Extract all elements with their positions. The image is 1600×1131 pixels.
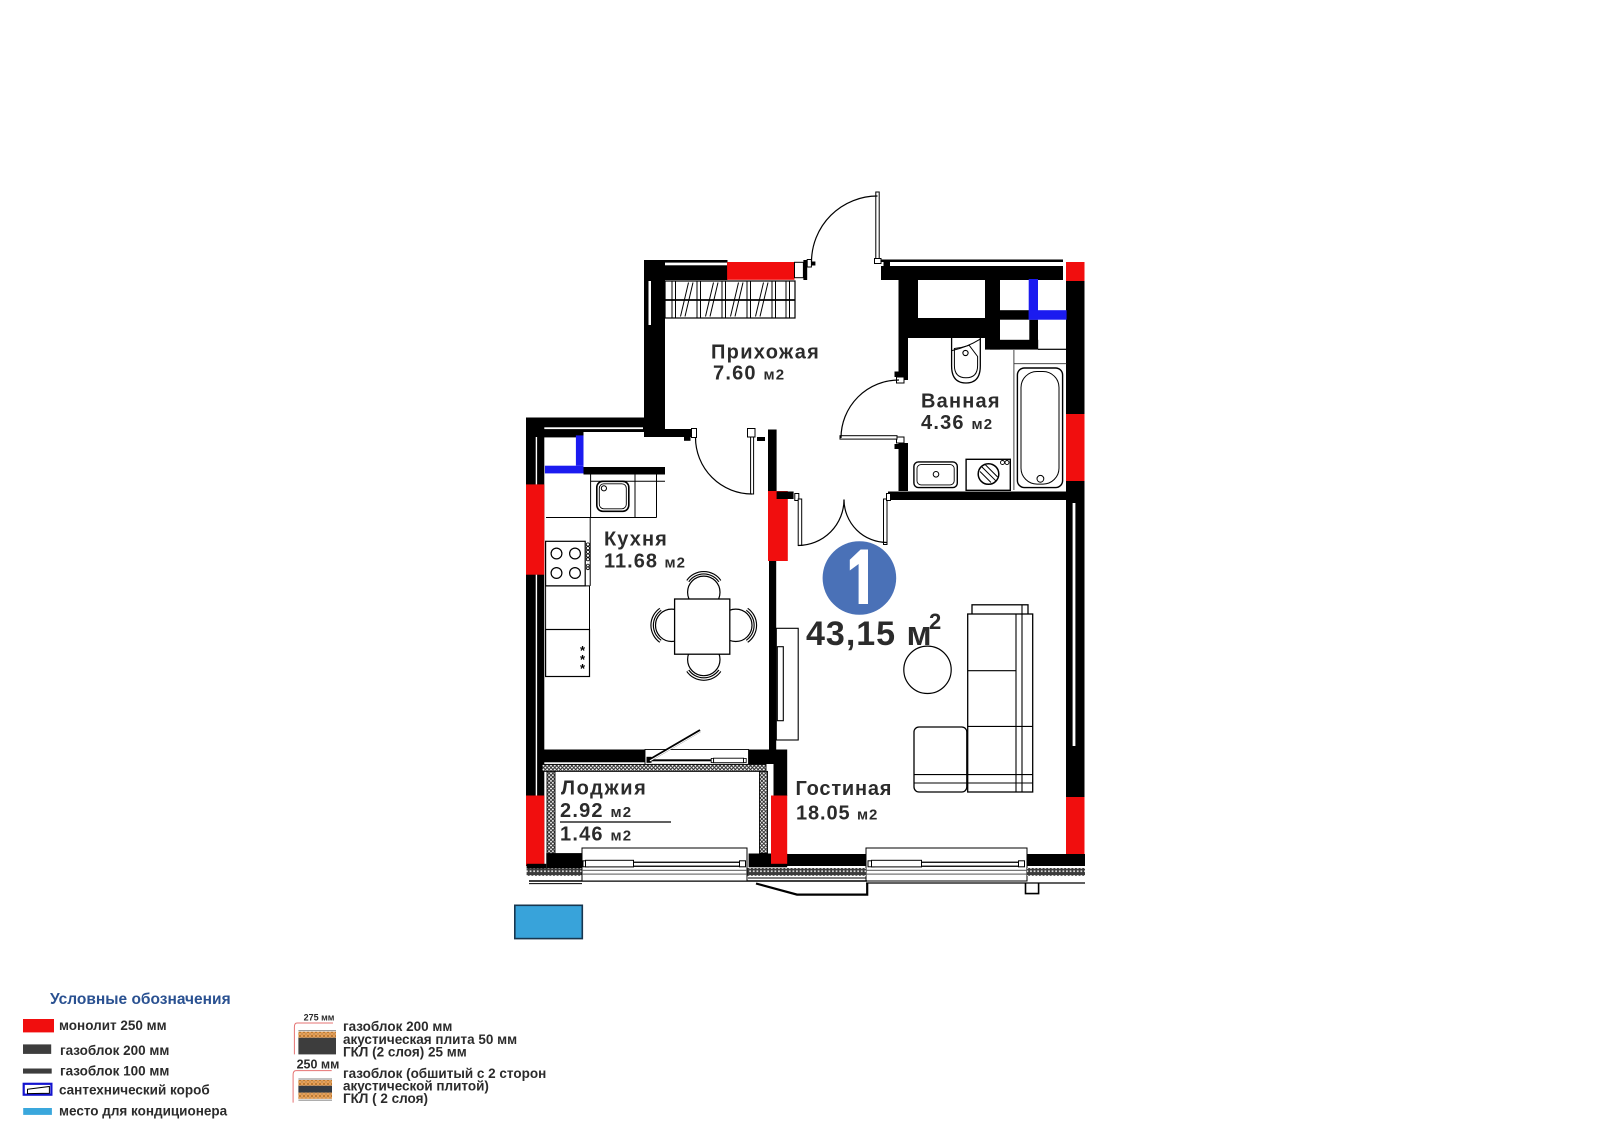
svg-text:ГКЛ ( 2 слоя): ГКЛ ( 2 слоя) (343, 1091, 428, 1106)
svg-text:Гостиная: Гостиная (796, 778, 893, 800)
svg-text:275 мм: 275 мм (304, 1012, 335, 1022)
svg-text:43,15 м: 43,15 м (806, 615, 933, 653)
svg-text:7.60 м2: 7.60 м2 (713, 363, 785, 385)
svg-text:место для кондиционера: место для кондиционера (59, 1104, 228, 1119)
svg-text:газоблок 200 мм: газоблок 200 мм (60, 1043, 169, 1058)
svg-text:Прихожая: Прихожая (711, 342, 820, 364)
svg-text:газоблок 100 мм: газоблок 100 мм (60, 1063, 169, 1078)
svg-text:Ванная: Ванная (921, 391, 1001, 413)
svg-text:Условные обозначения: Условные обозначения (50, 991, 231, 1008)
svg-text:1.46 м2: 1.46 м2 (560, 824, 632, 846)
svg-text:18.05 м2: 18.05 м2 (796, 803, 878, 825)
svg-text:Лоджия: Лоджия (561, 778, 647, 800)
svg-text:4.36 м2: 4.36 м2 (921, 412, 993, 434)
svg-text:ГКЛ (2 слоя) 25 мм: ГКЛ (2 слоя) 25 мм (343, 1045, 467, 1060)
svg-text:сантехнический короб: сантехнический короб (59, 1082, 210, 1097)
svg-text:250 мм: 250 мм (297, 1057, 340, 1071)
svg-text:монолит 250 мм: монолит 250 мм (59, 1018, 167, 1033)
svg-text:11.68 м2: 11.68 м2 (604, 551, 686, 573)
svg-text:2.92 м2: 2.92 м2 (560, 800, 632, 822)
svg-text:2: 2 (929, 609, 941, 634)
svg-text:Кухня: Кухня (604, 528, 668, 550)
